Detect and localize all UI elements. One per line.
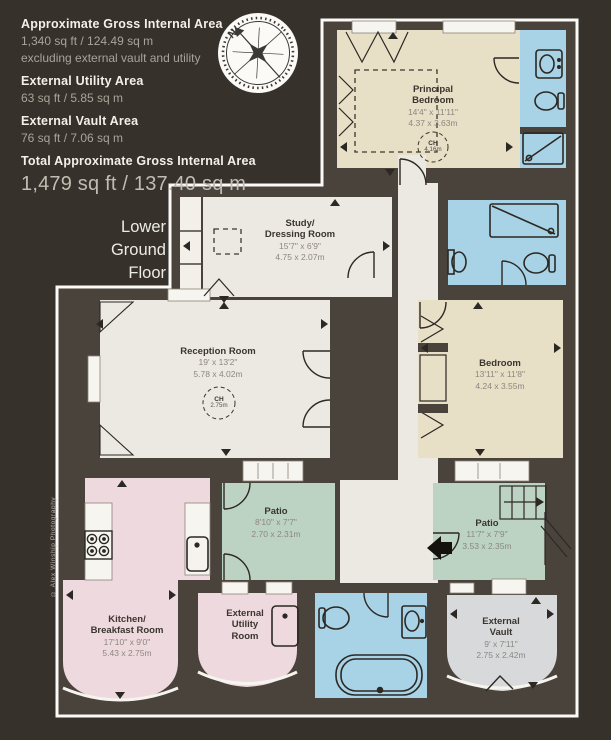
room-external-utility (198, 593, 297, 687)
room-kitchen-lower (63, 580, 178, 701)
window (352, 21, 396, 33)
floor-label: Lower Ground Floor (72, 216, 166, 284)
window (222, 582, 248, 594)
gia-note: excluding external vault and utility (21, 51, 321, 66)
room-reception (100, 300, 330, 458)
room-principal-bedroom (337, 30, 520, 168)
kitchen-sink-icon (187, 537, 208, 571)
gia-value: 1,340 sq ft / 124.49 sq m (21, 34, 321, 49)
window (450, 583, 474, 593)
floorplan-page: Approximate Gross Internal Area 1,340 sq… (0, 0, 611, 740)
room-external-vault (447, 595, 557, 691)
room-bathroom-lower (315, 593, 427, 698)
window (168, 289, 210, 301)
utility-area-value: 63 sq ft / 5.85 sq m (21, 91, 321, 106)
room-patio-left (222, 483, 335, 580)
study-closet-strip (180, 197, 202, 297)
window (492, 579, 526, 594)
gia-label: Approximate Gross Internal Area (21, 17, 321, 32)
copyright-note: © Alex Winship Photography (50, 462, 57, 597)
room-patio-right (433, 483, 545, 580)
vault-area-value: 76 sq ft / 7.06 sq m (21, 131, 321, 146)
room-study (180, 197, 392, 297)
total-area-value: 1,479 sq ft / 137.40 sq m (21, 173, 321, 196)
total-area-label: Total Approximate Gross Internal Area (21, 154, 321, 169)
room-bedroom (418, 300, 563, 458)
window (455, 461, 529, 481)
utility-area-label: External Utility Area (21, 74, 321, 89)
vault-area-label: External Vault Area (21, 114, 321, 129)
window (443, 21, 515, 33)
area-summary: Approximate Gross Internal Area 1,340 sq… (21, 17, 321, 204)
window (88, 356, 100, 402)
window (266, 582, 292, 594)
